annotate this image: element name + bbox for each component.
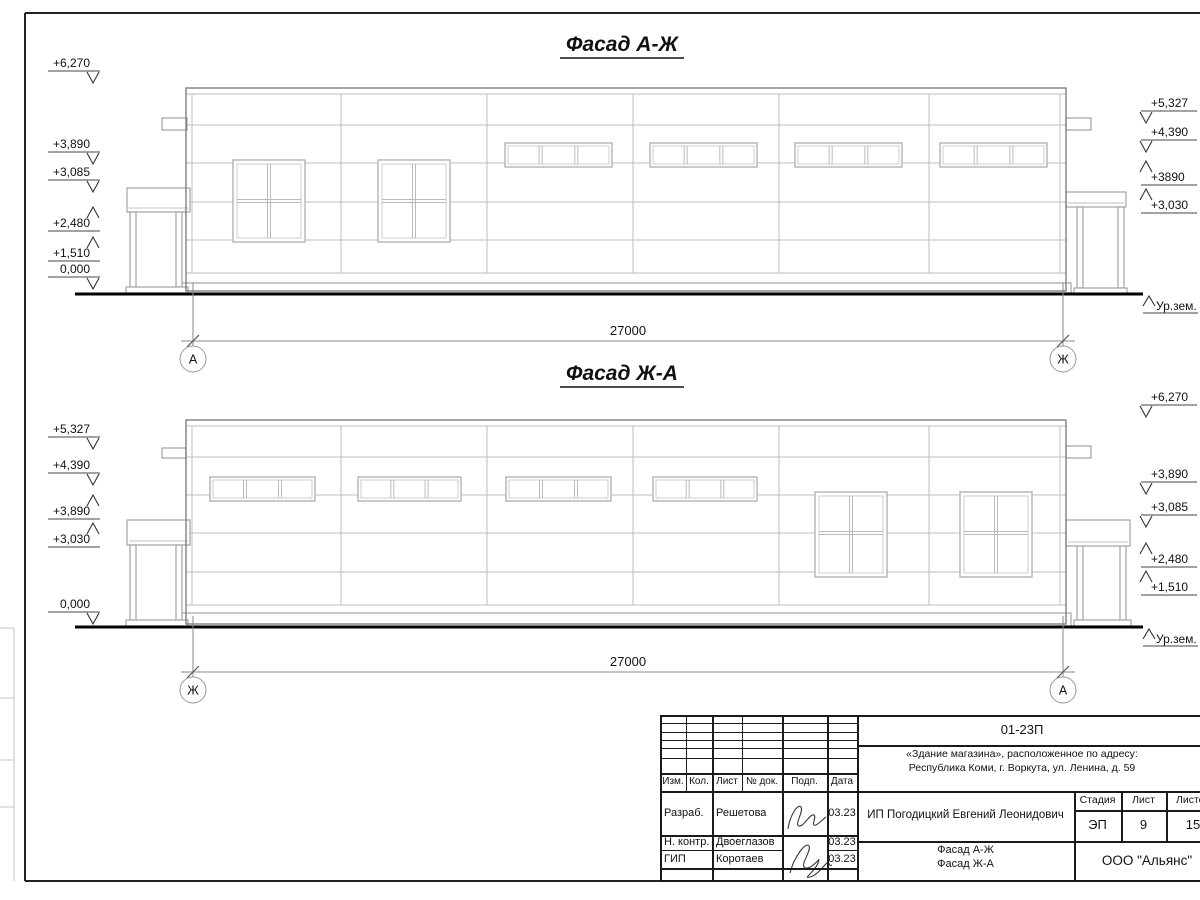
canopy-slab bbox=[1066, 192, 1126, 207]
title-block: Изм. Кол. Лист № док. Подп. Дата Разраб.… bbox=[660, 715, 1200, 882]
canopy-base bbox=[126, 620, 188, 626]
elevation-mark-label: +3,890 bbox=[53, 504, 90, 518]
wall-protrusion bbox=[162, 118, 187, 130]
title-block-line bbox=[660, 835, 857, 837]
title-block-line bbox=[660, 850, 782, 851]
signature-nkontr-gip bbox=[790, 845, 832, 877]
tall-window bbox=[233, 160, 305, 242]
ground-label: Ур.зем. bbox=[1156, 632, 1197, 646]
title-block-line bbox=[660, 791, 1200, 793]
strip-window bbox=[505, 143, 612, 167]
canopy-base bbox=[1074, 620, 1131, 626]
elevation-mark-label: +3890 bbox=[1151, 170, 1185, 184]
elevation-mark-arrow-down bbox=[1140, 406, 1152, 417]
canopy-post bbox=[1077, 546, 1083, 620]
tb-sheet-title-line2: Фасад Ж-А bbox=[857, 857, 1074, 872]
tb-name-nkontr: Двоеглазов bbox=[716, 835, 780, 850]
title-block-line bbox=[1166, 791, 1168, 841]
elevation-mark-label: +1,510 bbox=[1151, 580, 1188, 594]
elevation-mark-label: +3,085 bbox=[53, 165, 90, 179]
tb-sheets-header: Листов bbox=[1166, 791, 1200, 810]
drawing-sheet: Ур.зем.27000АЖФасад А-Ж+6,270+3,890+3,08… bbox=[0, 0, 1200, 900]
canopy-post bbox=[176, 212, 182, 287]
canopy-post bbox=[1118, 207, 1124, 288]
elevation-mark-arrow-down bbox=[87, 181, 99, 192]
elevation-mark-arrow-down bbox=[1140, 483, 1152, 494]
strip-window bbox=[210, 477, 315, 501]
elevation-mark-label: +4,390 bbox=[1151, 125, 1188, 139]
strip-window bbox=[506, 477, 611, 501]
title-block-line bbox=[857, 715, 859, 882]
tb-project-line2: Республика Коми, г. Воркута, ул. Ленина,… bbox=[857, 761, 1187, 775]
title-block-line bbox=[660, 880, 1200, 882]
tb-name-razrab: Решетова bbox=[716, 791, 780, 835]
elevation-mark-label: +2,480 bbox=[53, 216, 90, 230]
tb-date-gip: 03.23 bbox=[827, 850, 857, 868]
ground-mark-arrow bbox=[1143, 629, 1155, 639]
strip-window bbox=[358, 477, 461, 501]
elevation-mark-arrow-down bbox=[87, 278, 99, 289]
elevation-mark-label: +4,390 bbox=[53, 458, 90, 472]
tb-project-line1: «Здание магазина», расположенное по адре… bbox=[857, 747, 1187, 761]
tb-client: ИП Погодицкий Евгений Леонидович bbox=[857, 791, 1074, 841]
title-block-line bbox=[1074, 791, 1076, 882]
title-block-line bbox=[660, 732, 857, 733]
signature-razrab bbox=[788, 806, 826, 829]
tb-sheet-title-line1: Фасад А-Ж bbox=[857, 843, 1074, 858]
elevation-mark-arrow-down bbox=[87, 613, 99, 624]
canopy-post bbox=[1077, 207, 1083, 288]
tall-window bbox=[378, 160, 450, 242]
title-block-line bbox=[660, 723, 857, 724]
tb-col-data: Дата bbox=[827, 773, 857, 791]
building-outline bbox=[186, 420, 1066, 624]
tb-col-izm: Изм. bbox=[660, 773, 686, 791]
elevation-mark-arrow-down bbox=[1140, 141, 1152, 152]
tb-stage-value: ЭП bbox=[1074, 810, 1121, 841]
title-block-line bbox=[660, 758, 857, 759]
tb-company: ООО "Альянс" bbox=[1074, 841, 1200, 881]
tb-sheet-value: 9 bbox=[1121, 810, 1166, 841]
ground-label: Ур.зем. bbox=[1156, 299, 1197, 313]
elevation-mark-label: +6,270 bbox=[53, 56, 90, 70]
title-block-line bbox=[857, 841, 1200, 843]
title-block-line bbox=[742, 715, 743, 791]
facade-title: Фасад А-Ж bbox=[566, 33, 679, 56]
elevation-mark-label: +3,030 bbox=[1151, 198, 1188, 212]
tb-date-razrab: 03.23 bbox=[827, 791, 857, 835]
tb-sheet-header: Лист bbox=[1121, 791, 1166, 810]
tb-stage-header: Стадия bbox=[1074, 791, 1121, 810]
elevation-mark-label: 0,000 bbox=[60, 262, 90, 276]
title-block-line bbox=[827, 850, 857, 851]
elevation-mark-label: +3,890 bbox=[1151, 467, 1188, 481]
canopy-post bbox=[130, 545, 136, 620]
wall-protrusion bbox=[1066, 118, 1091, 130]
ground-mark-arrow bbox=[1143, 296, 1155, 306]
title-block-line bbox=[660, 740, 857, 741]
title-block-line bbox=[660, 715, 1200, 717]
elevation-mark-label: +5,327 bbox=[1151, 96, 1188, 110]
tb-col-podp: Подп. bbox=[782, 773, 827, 791]
title-block-line bbox=[1074, 810, 1200, 812]
strip-window bbox=[940, 143, 1047, 167]
strip-window bbox=[650, 143, 757, 167]
title-block-line bbox=[660, 773, 857, 775]
tb-date-nkontr: 03.23 bbox=[827, 835, 857, 850]
title-block-line bbox=[660, 748, 857, 749]
tb-col-list: Лист bbox=[712, 773, 742, 791]
elevation-mark-arrow-down bbox=[87, 72, 99, 83]
elevation-mark-arrow-down bbox=[1140, 516, 1152, 527]
elevation-mark-label: +3,890 bbox=[53, 137, 90, 151]
elevation-mark-label: +3,085 bbox=[1151, 500, 1188, 514]
elevation-mark-label: 0,000 bbox=[60, 597, 90, 611]
title-block-line bbox=[660, 868, 857, 870]
elevation-mark-label: +3,030 bbox=[53, 532, 90, 546]
dimension-value: 27000 bbox=[610, 323, 646, 338]
tb-doc-number: 01-23П bbox=[857, 715, 1187, 745]
tb-role-razrab: Разраб. bbox=[664, 791, 712, 835]
axis-letter: А bbox=[1059, 684, 1068, 698]
axis-letter: Ж bbox=[187, 684, 199, 698]
elevation-mark-arrow-down bbox=[87, 153, 99, 164]
strip-window bbox=[795, 143, 902, 167]
tb-role-gip: ГИП bbox=[664, 850, 712, 868]
wall-protrusion bbox=[162, 448, 186, 458]
wall-protrusion bbox=[1066, 446, 1091, 458]
title-block-line bbox=[857, 745, 1200, 747]
canopy-post bbox=[176, 545, 182, 620]
tb-col-kol: Кол. bbox=[686, 773, 712, 791]
elevation-mark-arrow-down bbox=[1140, 112, 1152, 123]
axis-letter: А bbox=[189, 353, 198, 367]
elevation-mark-label: +2,480 bbox=[1151, 552, 1188, 566]
tb-role-nkontr: Н. контр. bbox=[664, 835, 712, 850]
axis-letter: Ж bbox=[1057, 353, 1069, 367]
building-outline bbox=[186, 88, 1066, 291]
canopy-post bbox=[130, 212, 136, 287]
strip-window bbox=[653, 477, 757, 501]
dimension-value: 27000 bbox=[610, 654, 646, 669]
tb-sheets-value: 15 bbox=[1166, 810, 1200, 841]
tb-name-gip: Коротаев bbox=[716, 850, 780, 868]
elevation-mark-label: +1,510 bbox=[53, 246, 90, 260]
title-block-line bbox=[686, 715, 687, 791]
title-block-line bbox=[1121, 791, 1123, 841]
elevation-mark-label: +6,270 bbox=[1151, 390, 1188, 404]
elevation-mark-label: +5,327 bbox=[53, 422, 90, 436]
facade-title: Фасад Ж-А bbox=[566, 362, 678, 385]
elevation-mark-arrow-down bbox=[87, 474, 99, 485]
tb-col-doc: № док. bbox=[742, 773, 782, 791]
canopy-post bbox=[1120, 546, 1126, 620]
elevation-mark-arrow-down bbox=[87, 438, 99, 449]
canopy-base bbox=[126, 287, 188, 293]
